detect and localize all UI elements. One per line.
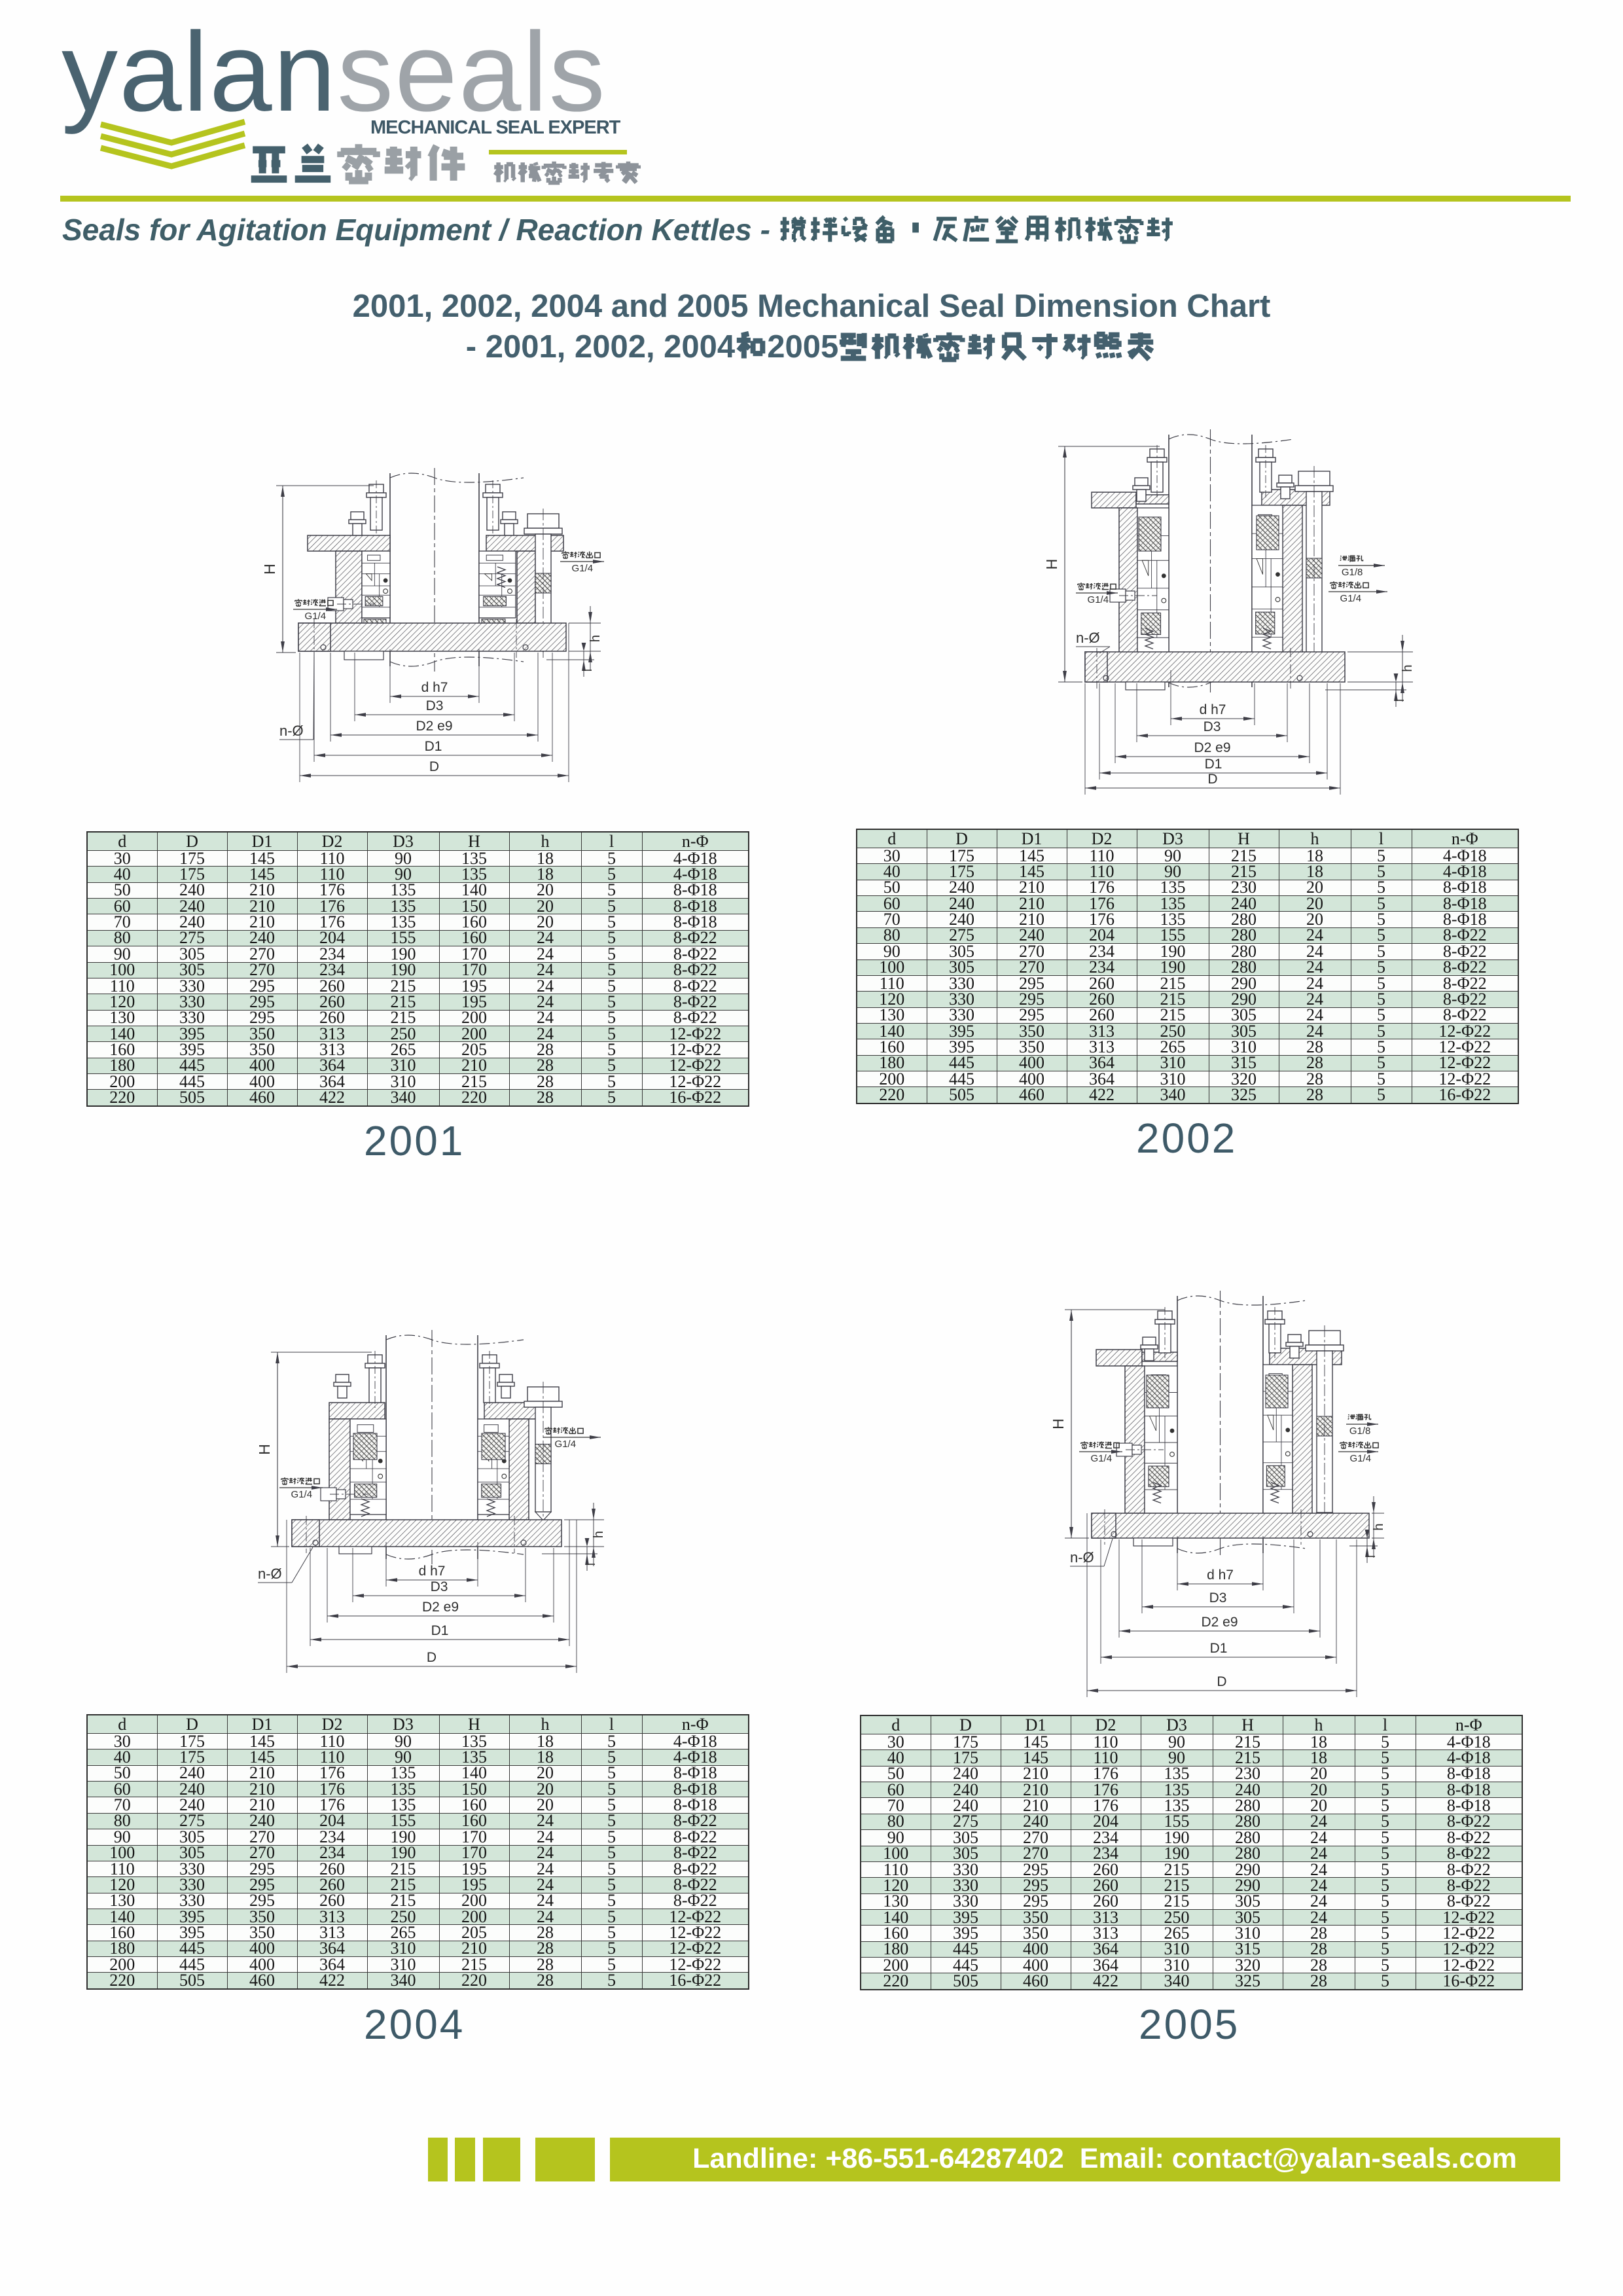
svg-text:d h7: d h7 [419,1564,446,1579]
svg-text:D2 e9: D2 e9 [1194,740,1230,755]
svg-text:D3: D3 [1209,1590,1227,1605]
svg-text:l: l [581,669,594,672]
svg-text:D3: D3 [431,1579,448,1594]
svg-text:h: h [1372,1523,1386,1530]
svg-text:D: D [1217,1674,1226,1689]
svg-text:l: l [584,1563,597,1566]
svg-text:H: H [1050,1418,1067,1429]
svg-text:D: D [1207,772,1217,787]
svg-text:G1/8: G1/8 [1342,567,1363,578]
svg-text:H: H [261,564,278,575]
svg-text:G1/4: G1/4 [1088,594,1109,605]
svg-text:l: l [1393,699,1406,702]
svg-text:H: H [1043,559,1060,570]
svg-text:n-Ø: n-Ø [1076,630,1100,646]
svg-text:G1/4: G1/4 [305,611,327,622]
svg-text:D1: D1 [431,1623,449,1638]
svg-text:n-Ø: n-Ø [1070,1549,1094,1566]
svg-text:D2 e9: D2 e9 [1201,1615,1238,1630]
svg-text:D3: D3 [426,698,444,713]
svg-text:d h7: d h7 [1200,702,1226,717]
svg-text:d h7: d h7 [1207,1568,1234,1583]
svg-text:D2 e9: D2 e9 [416,719,452,734]
svg-text:G1/4: G1/4 [1091,1453,1113,1464]
svg-text:G1/8: G1/8 [1349,1426,1371,1437]
svg-text:G1/4: G1/4 [291,1489,313,1500]
svg-text:l: l [1364,1555,1378,1558]
svg-text:n-Ø: n-Ø [258,1566,282,1582]
svg-text:G1/4: G1/4 [1340,593,1362,604]
svg-text:D3: D3 [1204,719,1221,734]
svg-text:h: h [1400,664,1415,672]
svg-text:D1: D1 [425,739,442,754]
svg-text:H: H [256,1444,273,1455]
svg-text:D1: D1 [1205,757,1222,772]
svg-text:D: D [427,1650,437,1665]
svg-text:D2 e9: D2 e9 [422,1600,459,1615]
svg-text:G1/4: G1/4 [555,1439,577,1450]
svg-text:G1/4: G1/4 [1350,1453,1372,1464]
svg-text:D1: D1 [1210,1641,1228,1656]
svg-text:G1/4: G1/4 [572,563,594,574]
svg-text:D: D [429,759,439,774]
svg-text:d h7: d h7 [421,680,448,695]
svg-text:h: h [588,635,603,642]
svg-text:h: h [592,1531,606,1538]
